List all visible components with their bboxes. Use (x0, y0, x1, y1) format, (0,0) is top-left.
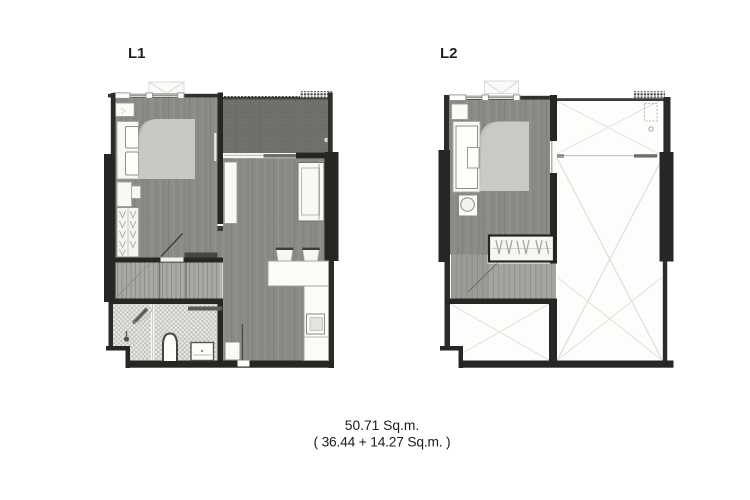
svg-text:( 36.44 + 14.27 Sq.m. ): ( 36.44 + 14.27 Sq.m. ) (314, 435, 451, 450)
svg-text:L1: L1 (128, 45, 146, 62)
svg-text:50.71 Sq.m.: 50.71 Sq.m. (345, 418, 419, 433)
svg-text:L2: L2 (440, 45, 458, 62)
